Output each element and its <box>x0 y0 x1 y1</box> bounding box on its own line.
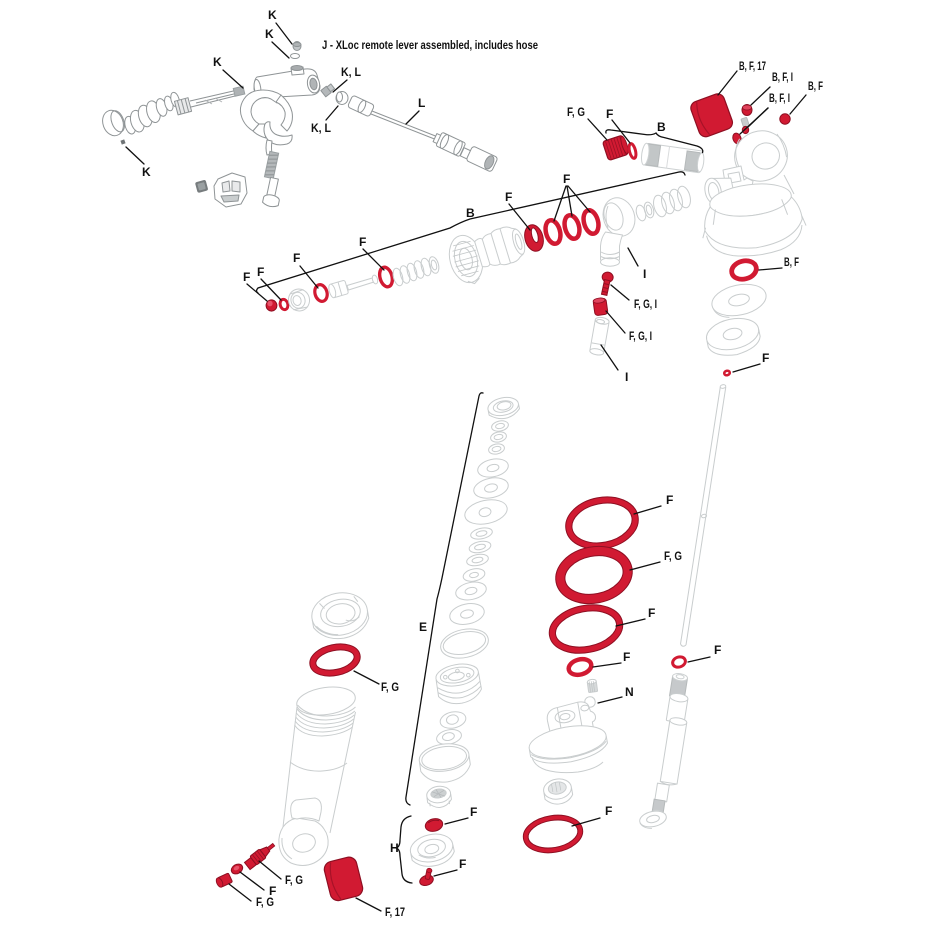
svg-text:F: F <box>505 190 512 204</box>
svg-text:K: K <box>268 8 277 22</box>
svg-text:B, F, I: B, F, I <box>772 70 793 84</box>
svg-text:F, G, I: F, G, I <box>634 297 657 311</box>
svg-text:F: F <box>359 235 366 249</box>
svg-text:F: F <box>762 351 769 365</box>
svg-text:F, G, I: F, G, I <box>629 329 652 343</box>
svg-text:F: F <box>257 265 264 279</box>
svg-text:K, L: K, L <box>341 65 361 79</box>
svg-text:B, F: B, F <box>808 79 823 93</box>
svg-text:F, G: F, G <box>664 549 682 563</box>
svg-text:K, L: K, L <box>311 121 331 135</box>
svg-text:E: E <box>419 620 427 634</box>
svg-text:F: F <box>648 606 655 620</box>
svg-text:B, F, I: B, F, I <box>769 91 790 105</box>
svg-text:F, G: F, G <box>285 873 303 887</box>
svg-text:F, G: F, G <box>381 680 399 694</box>
svg-text:F: F <box>666 493 673 507</box>
svg-text:B, F: B, F <box>784 255 799 269</box>
svg-text:I: I <box>643 267 646 281</box>
svg-text:F: F <box>293 251 300 265</box>
svg-text:K: K <box>142 165 151 179</box>
svg-text:J - XLoc remote lever assemble: J - XLoc remote lever assembled, include… <box>322 38 538 52</box>
svg-text:H: H <box>390 841 399 855</box>
svg-text:F: F <box>243 270 250 284</box>
svg-text:F: F <box>459 857 466 871</box>
svg-text:F: F <box>470 805 477 819</box>
svg-text:B: B <box>657 120 666 134</box>
svg-text:F, 17: F, 17 <box>385 905 405 919</box>
svg-text:L: L <box>418 96 425 110</box>
svg-text:K: K <box>213 55 222 69</box>
svg-text:F, G: F, G <box>567 105 585 119</box>
svg-text:B: B <box>466 206 475 220</box>
svg-text:N: N <box>625 685 634 699</box>
svg-text:K: K <box>265 27 274 41</box>
svg-text:F: F <box>605 804 612 818</box>
svg-text:F: F <box>714 643 721 657</box>
svg-text:F, G: F, G <box>256 895 274 909</box>
svg-text:F: F <box>606 107 613 121</box>
svg-text:I: I <box>625 370 628 384</box>
svg-text:F: F <box>623 650 630 664</box>
svg-text:B, F, 17: B, F, 17 <box>739 59 766 73</box>
svg-text:F: F <box>563 172 570 186</box>
